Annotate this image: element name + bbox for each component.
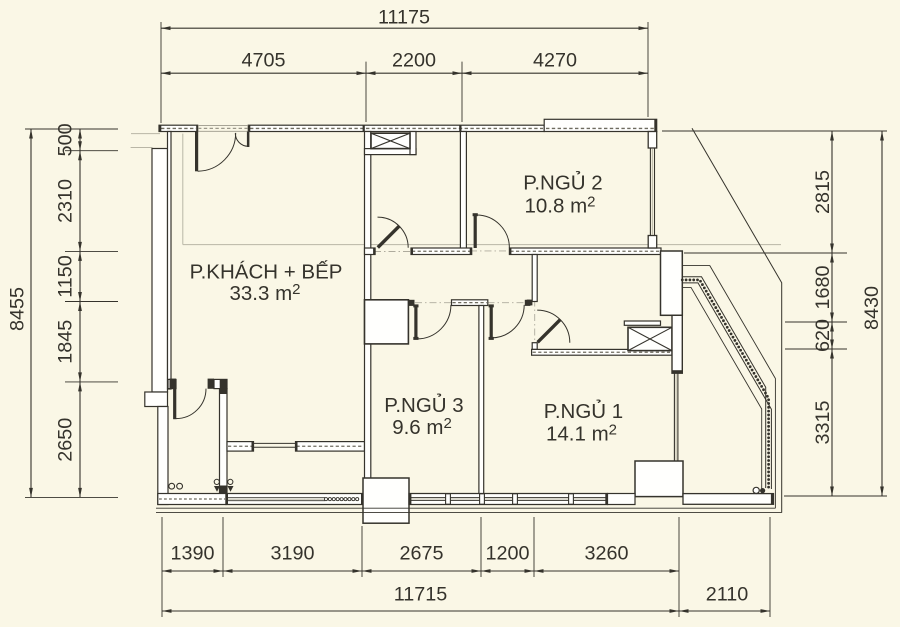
svg-text:500: 500 [55, 123, 77, 156]
svg-text:3260: 3260 [584, 543, 628, 565]
svg-text:14.1 m2: 14.1 m2 [546, 422, 617, 446]
svg-text:4705: 4705 [241, 50, 285, 72]
svg-text:11175: 11175 [378, 7, 430, 29]
svg-text:11715: 11715 [394, 584, 448, 606]
svg-text:2200: 2200 [392, 50, 436, 72]
svg-text:P.KHÁCH + BẾP: P.KHÁCH + BẾP [190, 260, 343, 283]
svg-text:1390: 1390 [170, 543, 214, 565]
svg-text:2110: 2110 [706, 584, 749, 606]
svg-text:P.NGỦ 1: P.NGỦ 1 [544, 399, 623, 423]
svg-text:P.NGỦ 2: P.NGỦ 2 [523, 171, 602, 195]
svg-text:2675: 2675 [399, 543, 443, 565]
svg-text:8455: 8455 [7, 287, 29, 331]
svg-text:1200: 1200 [485, 543, 529, 565]
svg-text:2650: 2650 [55, 418, 77, 462]
svg-text:1150: 1150 [55, 255, 77, 298]
svg-text:3315: 3315 [812, 400, 834, 444]
svg-text:8430: 8430 [861, 286, 883, 330]
svg-text:3190: 3190 [270, 543, 314, 565]
svg-text:620: 620 [812, 319, 834, 352]
svg-text:1680: 1680 [812, 265, 834, 309]
svg-text:2310: 2310 [55, 179, 77, 223]
svg-text:9.6 m2: 9.6 m2 [392, 415, 452, 439]
svg-text:4270: 4270 [533, 50, 577, 72]
svg-text:2815: 2815 [812, 170, 834, 214]
svg-text:P.NGỦ 3: P.NGỦ 3 [384, 393, 463, 417]
svg-text:10.8 m2: 10.8 m2 [524, 194, 595, 218]
svg-text:33.3 m2: 33.3 m2 [229, 281, 300, 305]
svg-text:1845: 1845 [55, 320, 77, 364]
